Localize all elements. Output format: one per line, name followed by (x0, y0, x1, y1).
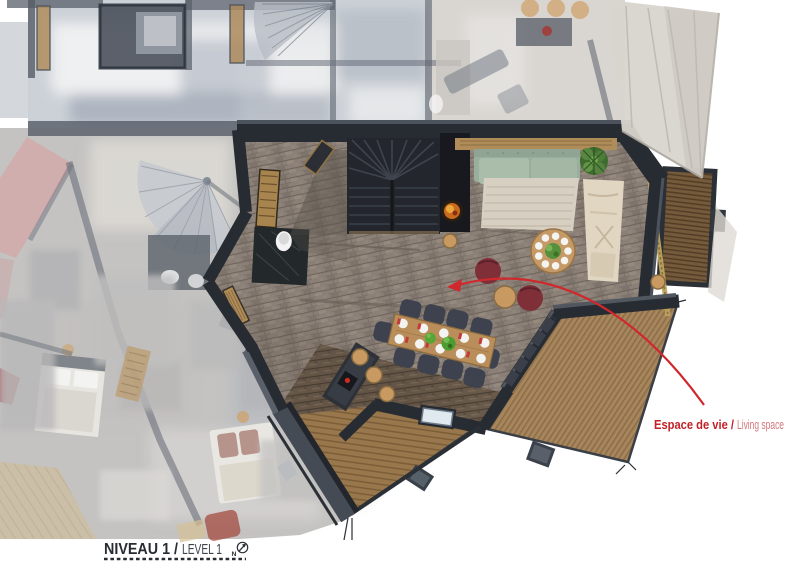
svg-text:Living space: Living space (737, 418, 784, 432)
svg-text:Espace de vie /: Espace de vie / (654, 418, 734, 432)
svg-text:LEVEL 1: LEVEL 1 (182, 542, 222, 558)
svg-text:NIVEAU 1 /: NIVEAU 1 / (104, 541, 179, 558)
svg-text:N: N (232, 551, 237, 558)
